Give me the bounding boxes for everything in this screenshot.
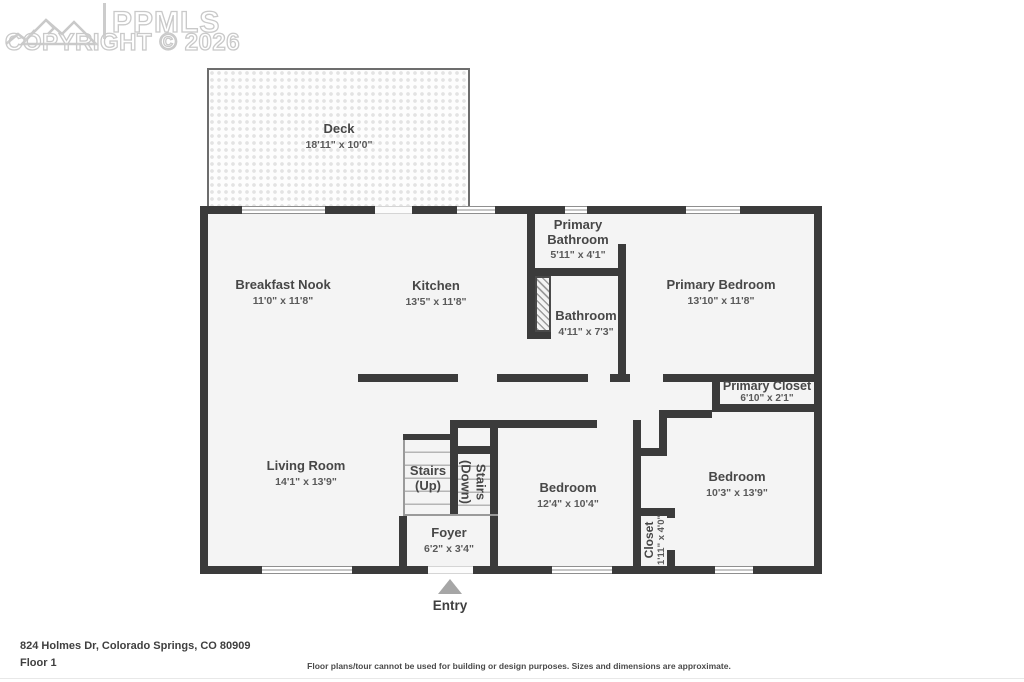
wall <box>527 268 626 276</box>
entry-arrow-icon <box>438 579 462 594</box>
wall <box>497 420 597 428</box>
wall <box>200 206 208 574</box>
disclaimer-text: Floor plans/tour cannot be used for buil… <box>307 661 731 671</box>
window <box>552 566 612 574</box>
wall <box>352 566 428 574</box>
room-label-stairs-up: Stairs (Up) <box>402 464 454 493</box>
room-label-kitchen: Kitchen 13'5" x 11'8" <box>405 279 466 308</box>
wall <box>458 446 490 454</box>
room-label-foyer: Foyer 6'2" x 3'4" <box>424 526 474 555</box>
window <box>262 566 352 574</box>
wall <box>495 206 565 214</box>
wall <box>527 332 551 339</box>
window <box>715 566 753 574</box>
room-label-primary-bedroom: Primary Bedroom 13'10" x 11'8" <box>666 278 775 307</box>
wall <box>618 244 626 382</box>
room-label-bedroom-2: Bedroom 10'3" x 13'9" <box>706 470 768 499</box>
room-label-living-room: Living Room 14'1" x 13'9" <box>267 459 346 488</box>
wall <box>667 550 675 566</box>
wall <box>399 516 407 566</box>
wall <box>358 374 458 382</box>
window <box>242 206 325 214</box>
wall <box>497 374 588 382</box>
wall <box>412 206 457 214</box>
window <box>686 206 740 214</box>
wall <box>753 566 822 574</box>
room-label-primary-bathroom: Primary Bathroom 5'11" x 4'1" <box>528 218 628 261</box>
wall <box>200 566 262 574</box>
room-label-breakfast-nook: Breakfast Nook 11'0" x 11'8" <box>235 278 330 307</box>
room-label-bathroom: Bathroom 4'11" x 7'3" <box>555 309 616 338</box>
watermark: PPMLS COPYRIGHT © 2026 <box>0 0 320 70</box>
window <box>565 206 587 214</box>
wall <box>712 404 814 412</box>
wall <box>659 410 712 418</box>
wall <box>740 206 822 214</box>
room-label-primary-closet: Primary Closet 6'10" x 2'1" <box>723 379 811 404</box>
window <box>457 206 495 214</box>
address-text: 824 Holmes Dr, Colorado Springs, CO 8090… <box>20 640 250 652</box>
watermark-copyright: COPYRIGHT © 2026 <box>5 29 240 57</box>
wall <box>473 566 552 574</box>
wall <box>490 420 498 566</box>
wall <box>610 374 630 382</box>
wall <box>667 508 675 518</box>
entry-label: Entry <box>433 598 468 613</box>
floor-plan-page: PPMLS COPYRIGHT © 2026 <box>0 0 1024 682</box>
room-label-bedroom-1: Bedroom 12'4" x 10'4" <box>537 481 599 510</box>
door-opening-deck <box>375 206 412 214</box>
wall <box>633 420 641 516</box>
room-label-deck: Deck 18'11" x 10'0" <box>306 122 373 151</box>
stairs-edge-line <box>403 514 498 516</box>
floor-number-text: Floor 1 <box>20 657 57 669</box>
wall <box>633 508 641 566</box>
wall <box>814 206 822 574</box>
page-divider <box>0 678 1024 679</box>
door-opening-entry <box>428 566 473 574</box>
wall <box>587 206 686 214</box>
chimney-hatch <box>535 276 551 332</box>
wall <box>325 206 375 214</box>
